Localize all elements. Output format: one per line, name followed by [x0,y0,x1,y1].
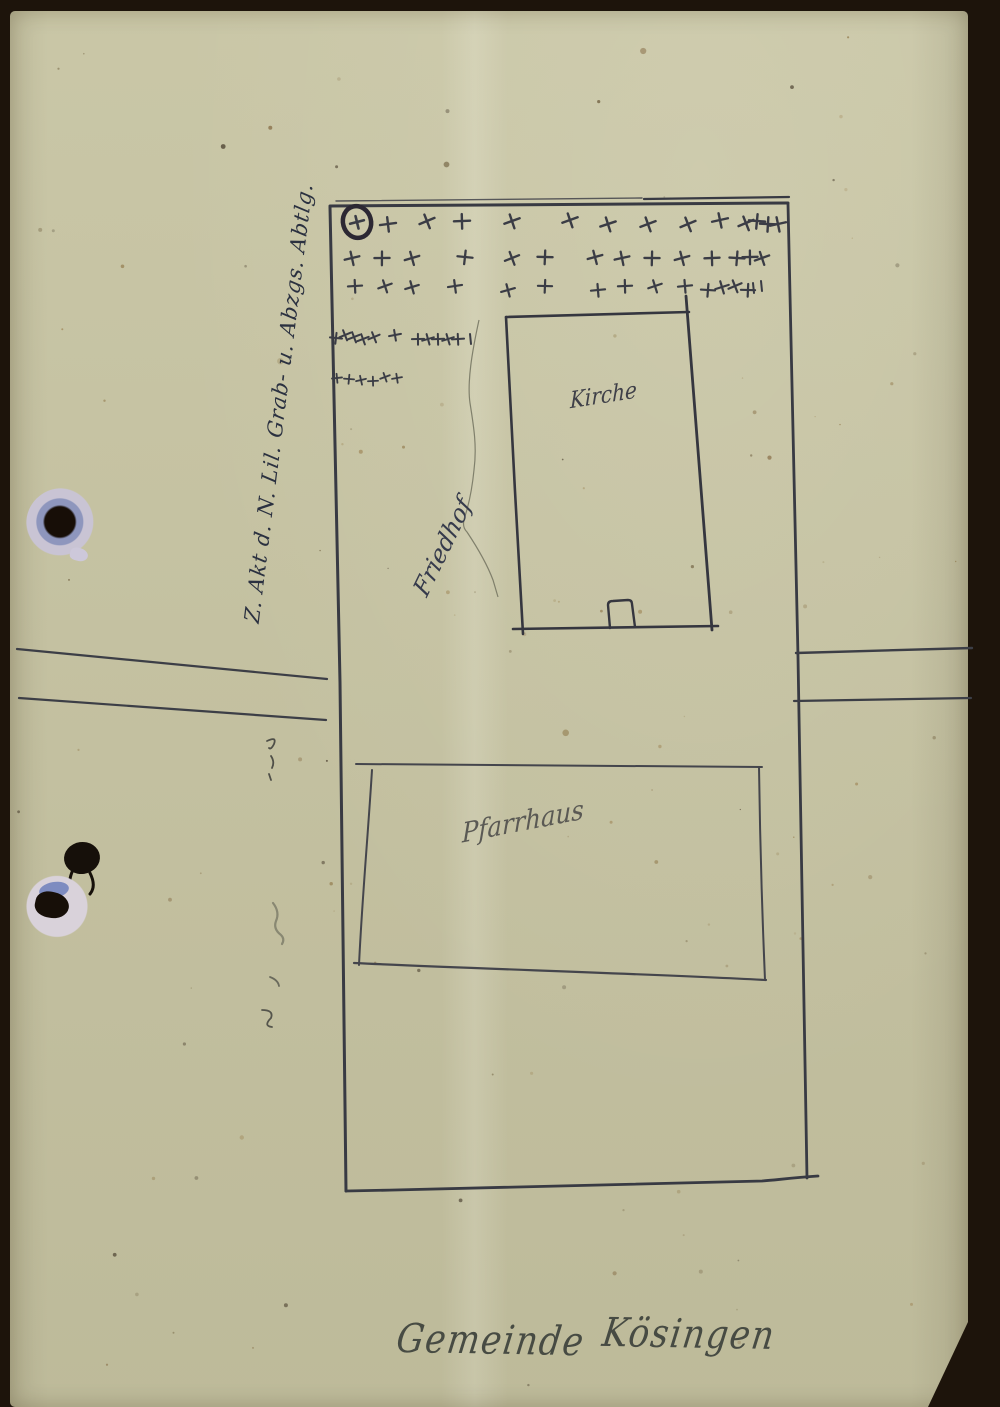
foxing-speckle [350,883,352,885]
foxing-speckle [200,872,202,874]
grave-cross-icon [599,216,617,233]
foxing-speckle [610,821,613,824]
foxing-speckle [776,852,779,855]
foxing-speckle [330,882,333,885]
parsonage-outline [354,764,766,980]
foxing-speckle [924,952,926,954]
foxing-speckle [341,443,343,445]
grave-cross-icon [536,249,553,265]
foxing-speckle [152,1177,155,1180]
grave-cross-icon [714,280,730,295]
grave-cross-icon [374,251,391,266]
foxing-speckle [57,68,59,70]
foxing-speckle [38,228,42,232]
grave-cross-icon [770,217,787,232]
site-plan-drawing [0,0,1000,1407]
foxing-speckle [750,454,752,456]
stray-tick-mark [753,283,754,293]
foxing-speckle [567,836,569,838]
foxing-speckle [740,809,741,810]
foxing-speckle [83,53,85,55]
grave-cross-icon [377,279,393,294]
foxing-speckle [583,487,585,489]
grave-cross-icon [456,249,474,266]
foxing-speckle [793,837,794,838]
foxing-speckle [742,377,743,378]
foxing-speckle [61,328,63,330]
foxing-speckle [638,610,642,614]
grave-cross-icon [753,250,770,266]
grave-cross-icon [404,251,421,266]
foxing-speckle [530,1072,533,1075]
grave-cross-icon [647,279,663,294]
foxing-speckle [839,424,840,425]
grave-cross-icon [368,376,379,386]
foxing-speckle [683,1234,685,1236]
foxing-speckle [847,36,849,38]
stray-tick-mark [761,281,762,291]
foxing-speckle [103,400,105,402]
foxing-speckle [52,229,55,232]
foxing-speckle [121,265,125,269]
road-lines [17,648,972,720]
foxing-speckle [822,561,824,563]
foxing-speckle [183,1042,186,1045]
foxing-speckle [879,557,880,558]
foxing-speckle [459,1199,463,1203]
grave-cross-icon [639,216,658,233]
foxing-speckle [895,263,899,267]
foxing-speckle [558,601,560,603]
foxing-speckle [839,115,842,118]
foxing-speckle [195,1176,199,1180]
foxing-speckle [191,987,192,988]
foxing-speckle [640,48,646,54]
foxing-speckle [890,382,893,385]
foxing-speckle [597,100,600,103]
grave-cross-icon [643,251,660,267]
hole-punch-top [26,488,98,560]
grave-cross-icon [452,333,465,345]
grave-cross-icon [617,279,632,293]
foxing-speckle [221,144,226,149]
grave-cross-icon [389,330,401,341]
foxing-speckle [322,861,325,864]
foxing-speckle [562,459,564,461]
foxing-speckle [767,456,771,460]
grave-cross-icon [343,374,355,385]
foxing-speckle [350,428,352,430]
foxing-speckle [699,1270,703,1274]
grave-cross-icon [503,250,521,267]
foxing-speckle [844,188,847,191]
grave-cross-icon [728,250,745,266]
grave-cross-icon [453,213,470,229]
foxing-speckle [613,1271,617,1275]
boundary-squiggle [464,320,499,597]
foxing-speckle [562,730,569,737]
grave-cross-icon [356,375,367,385]
grave-cross-icon [380,217,396,232]
foxing-speckle [803,604,807,608]
foxing-speckle [726,965,729,968]
foxing-speckle [402,446,405,449]
scanned-page: Kirche Friedhof Pfarrhaus Z. Akt d. N. L… [0,0,1000,1407]
foxing-speckle [326,760,328,762]
grave-cross-icon [727,279,744,295]
foxing-speckle [910,1303,913,1306]
foxing-speckle [252,1347,254,1349]
foxing-speckle [527,1384,529,1386]
foxing-speckle [135,1293,139,1297]
foxing-speckle [337,77,341,81]
foxing-speckle [553,599,556,602]
foxing-speckle [298,757,302,761]
grave-cross-icon [431,333,444,345]
foxing-speckle [492,1074,494,1076]
foxing-speckle [68,579,70,581]
foxing-speckle [359,450,363,454]
foxing-speckle [440,403,444,407]
foxing-speckle [113,1253,117,1257]
grave-cross-icon [674,251,691,266]
paper-speckles [17,36,956,1386]
foxing-speckle [708,923,710,925]
foxing-speckle [622,1209,624,1211]
grave-cross-icon [678,280,693,293]
foxing-speckle [753,410,757,414]
grave-cross-icon [614,251,630,266]
grave-cross-icon [679,215,698,233]
foxing-speckle [562,985,566,989]
foxing-speckle [868,875,872,879]
foxing-speckle [691,565,694,568]
hole-punch-bottom [23,871,91,939]
grave-cross-icon [344,251,360,266]
church-outline [506,296,718,634]
foxing-speckle [509,650,512,653]
grave-cross-icon [411,333,424,345]
foxing-speckle [77,749,79,751]
foxing-speckle [268,126,272,130]
margin-scribbles [262,739,283,1027]
foxing-speckle [736,1309,738,1311]
church-door [608,600,635,628]
foxing-speckle [173,1332,175,1334]
grave-cross-icon [392,374,402,383]
foxing-speckle [922,1162,925,1165]
grave-cross-icon [712,213,729,228]
grave-cross-icon [404,280,420,294]
grave-cross-icon [500,283,515,297]
foxing-speckle [651,789,653,791]
foxing-speckle [444,162,450,168]
foxing-speckle [832,179,834,181]
foxing-speckle [351,298,354,301]
foxing-speckle [792,1164,796,1168]
foxing-speckle [794,932,796,934]
grave-cross-icon [349,215,364,229]
stray-tick-mark [470,334,471,344]
foxing-speckle [677,1190,681,1194]
foxing-speckle [913,352,916,355]
foxing-speckle [17,810,20,813]
grave-cross-icon [587,250,604,265]
foxing-speckle [852,238,853,239]
foxing-speckle [244,265,247,268]
grave-cross-icon [704,251,720,266]
grave-cross-icon [537,279,553,294]
foxing-speckle [284,1303,288,1307]
foxing-speckle [417,969,420,972]
foxing-speckle [855,783,858,786]
grave-cross-icon [742,250,759,265]
caption-gemeinde: Gemeinde [394,1316,588,1365]
foxing-speckle [933,736,936,739]
grave-cross-icon [737,214,756,232]
foxing-speckle [387,568,388,569]
grave-cross-icon [379,372,391,383]
foxing-speckle [319,550,320,551]
foxing-speckle [729,610,733,614]
foxing-speckle [600,610,603,613]
grave-cross-icon [503,213,521,230]
foxing-speckle [168,898,172,902]
grave-cross-field [329,203,787,386]
foxing-speckle [815,416,816,417]
grave-cross-icon [329,332,343,345]
grave-cross-icon [347,279,362,293]
foxing-speckle [474,591,476,593]
foxing-speckle [613,334,616,337]
foxing-speckle [446,109,450,113]
foxing-speckle [738,1260,740,1262]
foxing-speckle [240,1135,244,1139]
plan-outline [330,197,818,1191]
grave-cross-icon [448,280,462,293]
caption-koesingen: Kösingen [600,1310,779,1359]
grave-cross-icon [561,212,579,229]
grave-cross-icon [591,284,606,297]
foxing-speckle [686,940,688,942]
foxing-speckle [333,910,334,911]
foxing-speckle [106,1364,108,1366]
foxing-speckle [684,716,685,717]
foxing-speckle [454,614,456,616]
grave-cross-icon [338,329,352,342]
foxing-speckle [790,85,794,89]
foxing-speckle [335,165,338,168]
foxing-speckle [832,884,834,886]
grave-cross-icon [418,212,437,230]
circled-grave-cross-icon [339,203,374,241]
grave-cross-icon [747,213,766,231]
foxing-speckle [658,745,661,748]
foxing-speckle [654,860,658,864]
foxing-speckle [446,590,450,594]
grave-cross-icon [700,283,716,298]
foxing-speckle [955,561,956,562]
